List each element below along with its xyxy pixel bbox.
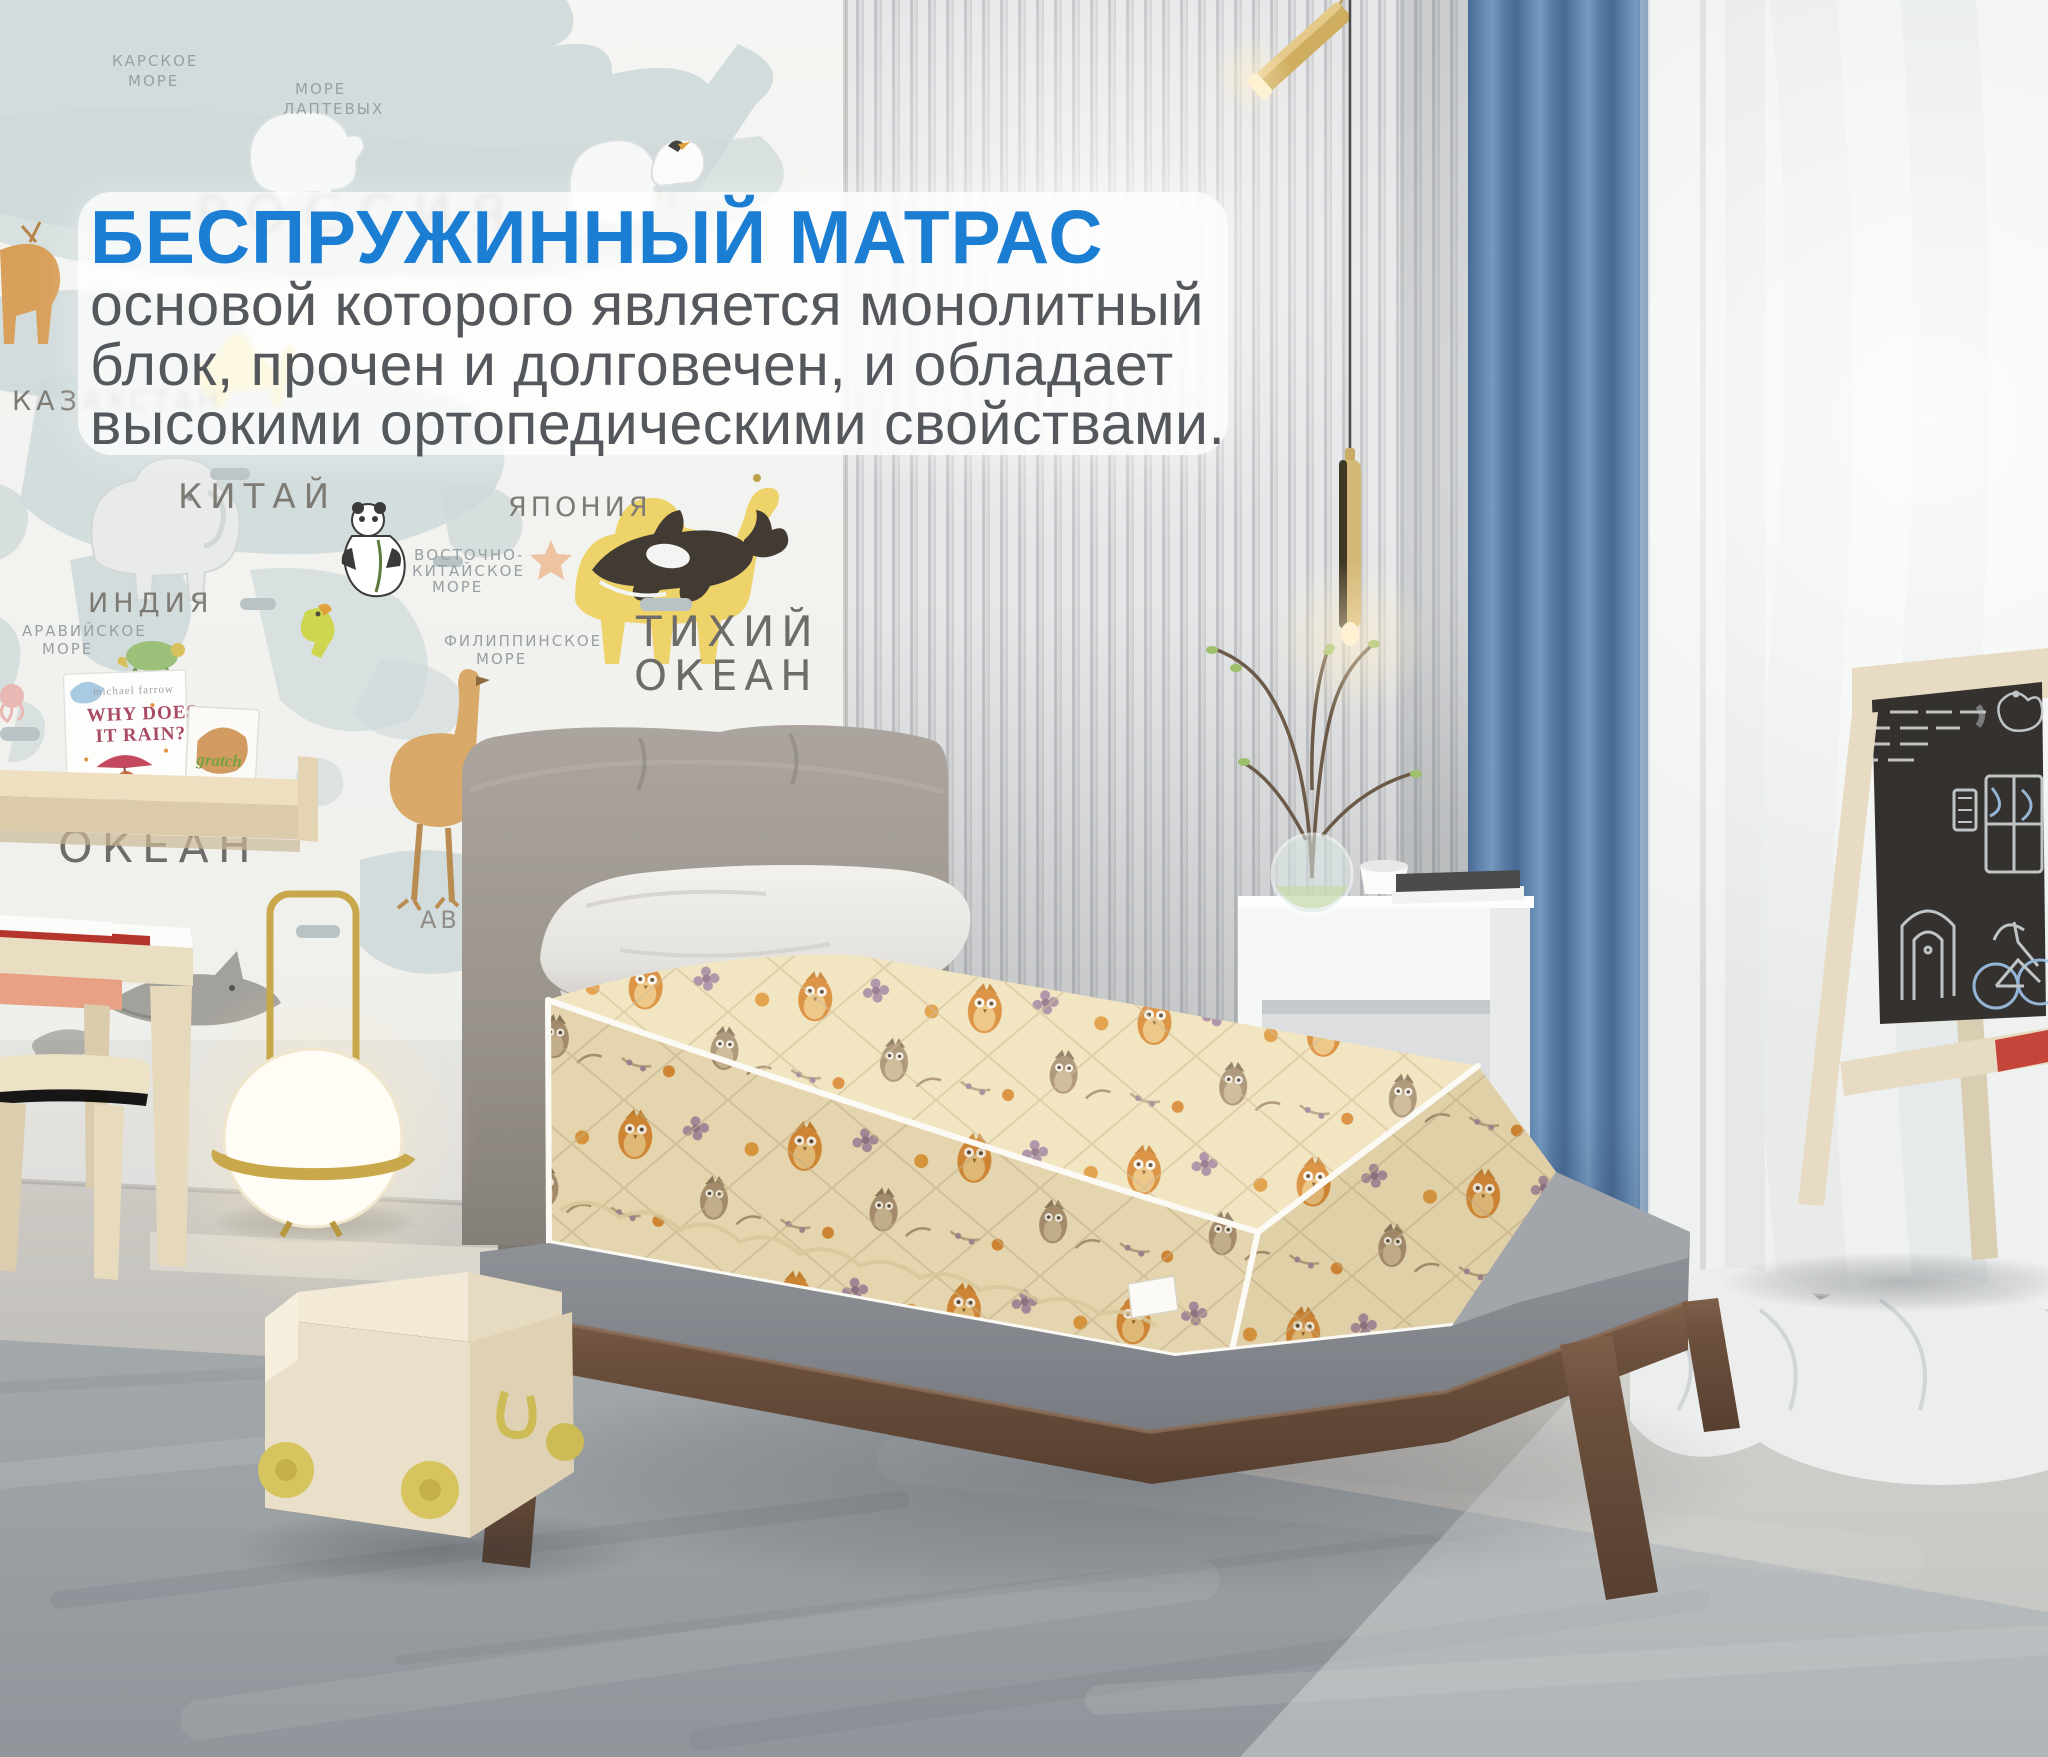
map-label-pacific-2: ОКЕАН	[634, 651, 819, 700]
svg-text:МОРЕ: МОРЕ	[432, 578, 483, 596]
svg-text:МОРЕ: МОРЕ	[128, 72, 179, 90]
svg-text:ЛАПТЕВЫХ: ЛАПТЕВЫХ	[283, 100, 384, 118]
svg-text:МОРЕ: МОРЕ	[476, 650, 527, 668]
map-label-philippine-sea: ФИЛИППИНСКОЕ	[444, 632, 602, 650]
map-label-japan: ЯПОНИЯ	[508, 492, 652, 523]
stacked-books	[1392, 870, 1524, 904]
promo-line-2: блок, прочен и долговечен, и обладает	[90, 336, 1228, 396]
promo-heading: БЕСПРУЖИННЫЙ МАТРАС	[90, 198, 1228, 276]
kids-room-product-photo: КАРСКОЕ МОРЕ МОРЕ ЛАПТЕВЫХ РОССИЯ КАЗАХС…	[0, 0, 2048, 1757]
promo-line-3: высокими ортопедическими свойствами.	[90, 395, 1228, 455]
mattress-tag	[1128, 1276, 1178, 1318]
map-label-laptev-sea: МОРЕ	[295, 80, 346, 98]
map-label-kara-sea: КАРСКОЕ	[112, 52, 198, 70]
svg-text:gratch: gratch	[195, 750, 242, 771]
svg-text:МОРЕ: МОРЕ	[42, 640, 93, 658]
svg-text:IT RAIN?: IT RAIN?	[95, 723, 186, 747]
map-label-pacific-1: ТИХИЙ	[635, 606, 820, 656]
map-label-china: КИТАЙ	[178, 476, 337, 517]
promo-text-panel: БЕСПРУЖИННЫЙ МАТРАС основой которого явл…	[78, 192, 1228, 455]
map-label-india: ИНДИЯ	[88, 588, 214, 619]
promo-line-1: основой которого является монолитный	[90, 276, 1228, 336]
map-label-arabian-sea: АРАВИЙСКОЕ	[22, 621, 147, 640]
